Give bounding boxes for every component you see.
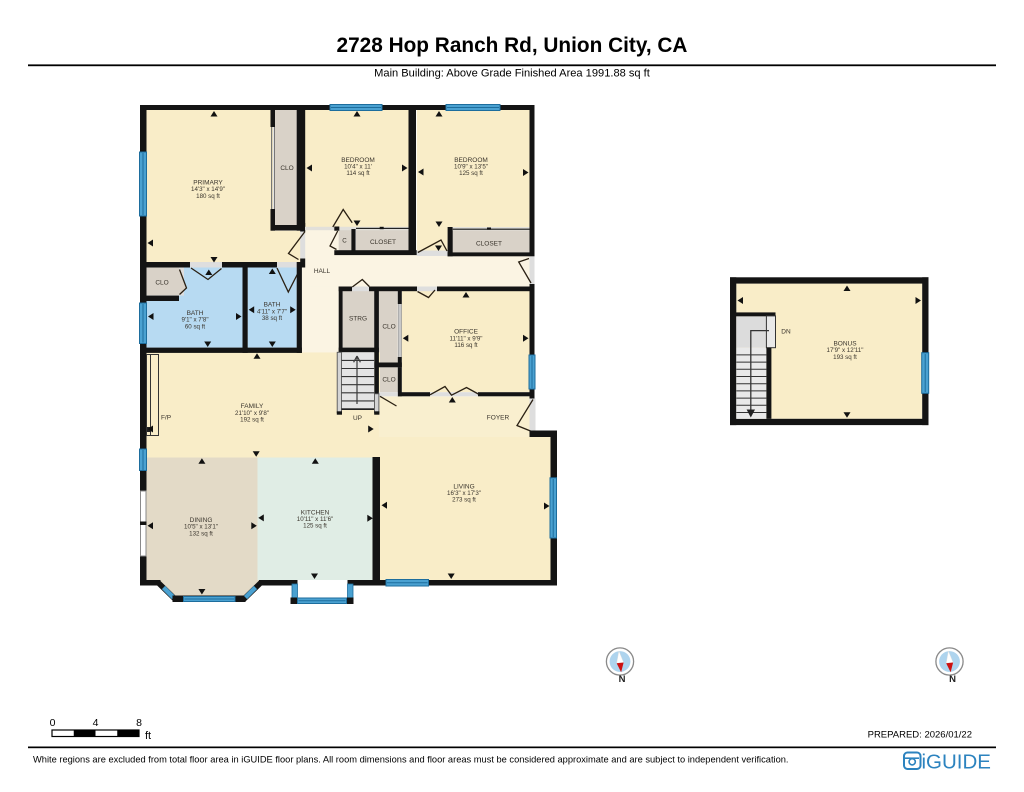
- svg-text:192 sq ft: 192 sq ft: [240, 417, 264, 424]
- svg-text:CLO: CLO: [382, 376, 395, 383]
- svg-text:PREPARED: 2026/01/22: PREPARED: 2026/01/22: [868, 730, 972, 741]
- svg-text:8: 8: [136, 717, 142, 729]
- svg-text:CLO: CLO: [382, 323, 395, 330]
- svg-text:180 sq ft: 180 sq ft: [196, 193, 220, 200]
- svg-text:38 sq ft: 38 sq ft: [262, 315, 283, 322]
- svg-text:HALL: HALL: [314, 268, 331, 275]
- svg-text:FOYER: FOYER: [487, 415, 510, 422]
- svg-text:UP: UP: [353, 415, 362, 422]
- svg-text:ft: ft: [145, 730, 151, 742]
- svg-text:273 sq ft: 273 sq ft: [452, 497, 476, 504]
- svg-text:125 sq ft: 125 sq ft: [459, 170, 483, 177]
- svg-text:Main Building: Above Grade Fin: Main Building: Above Grade Finished Area…: [374, 68, 650, 80]
- svg-text:White regions are excluded fro: White regions are excluded from total fl…: [33, 755, 789, 765]
- svg-text:iGUIDE: iGUIDE: [922, 751, 991, 774]
- svg-text:114 sq ft: 114 sq ft: [346, 170, 370, 177]
- svg-text:2728 Hop Ranch Rd, Union City,: 2728 Hop Ranch Rd, Union City, CA: [337, 34, 688, 57]
- svg-text:132 sq ft: 132 sq ft: [189, 530, 213, 537]
- svg-text:116 sq ft: 116 sq ft: [454, 342, 478, 349]
- svg-text:193 sq ft: 193 sq ft: [833, 354, 857, 361]
- svg-text:C: C: [342, 238, 347, 245]
- svg-text:DN: DN: [781, 329, 791, 336]
- svg-text:CLOSET: CLOSET: [476, 241, 502, 248]
- svg-text:STRG: STRG: [349, 316, 367, 323]
- svg-text:N: N: [619, 674, 626, 685]
- svg-text:CLOSET: CLOSET: [370, 239, 396, 246]
- svg-text:F/P: F/P: [161, 415, 171, 422]
- svg-text:4: 4: [93, 717, 99, 729]
- svg-text:CLO: CLO: [155, 280, 168, 287]
- svg-text:0: 0: [50, 717, 56, 729]
- svg-text:CLO: CLO: [280, 165, 293, 172]
- svg-text:60 sq ft: 60 sq ft: [185, 323, 206, 330]
- svg-text:N: N: [949, 674, 956, 685]
- svg-text:125 sq ft: 125 sq ft: [303, 523, 327, 530]
